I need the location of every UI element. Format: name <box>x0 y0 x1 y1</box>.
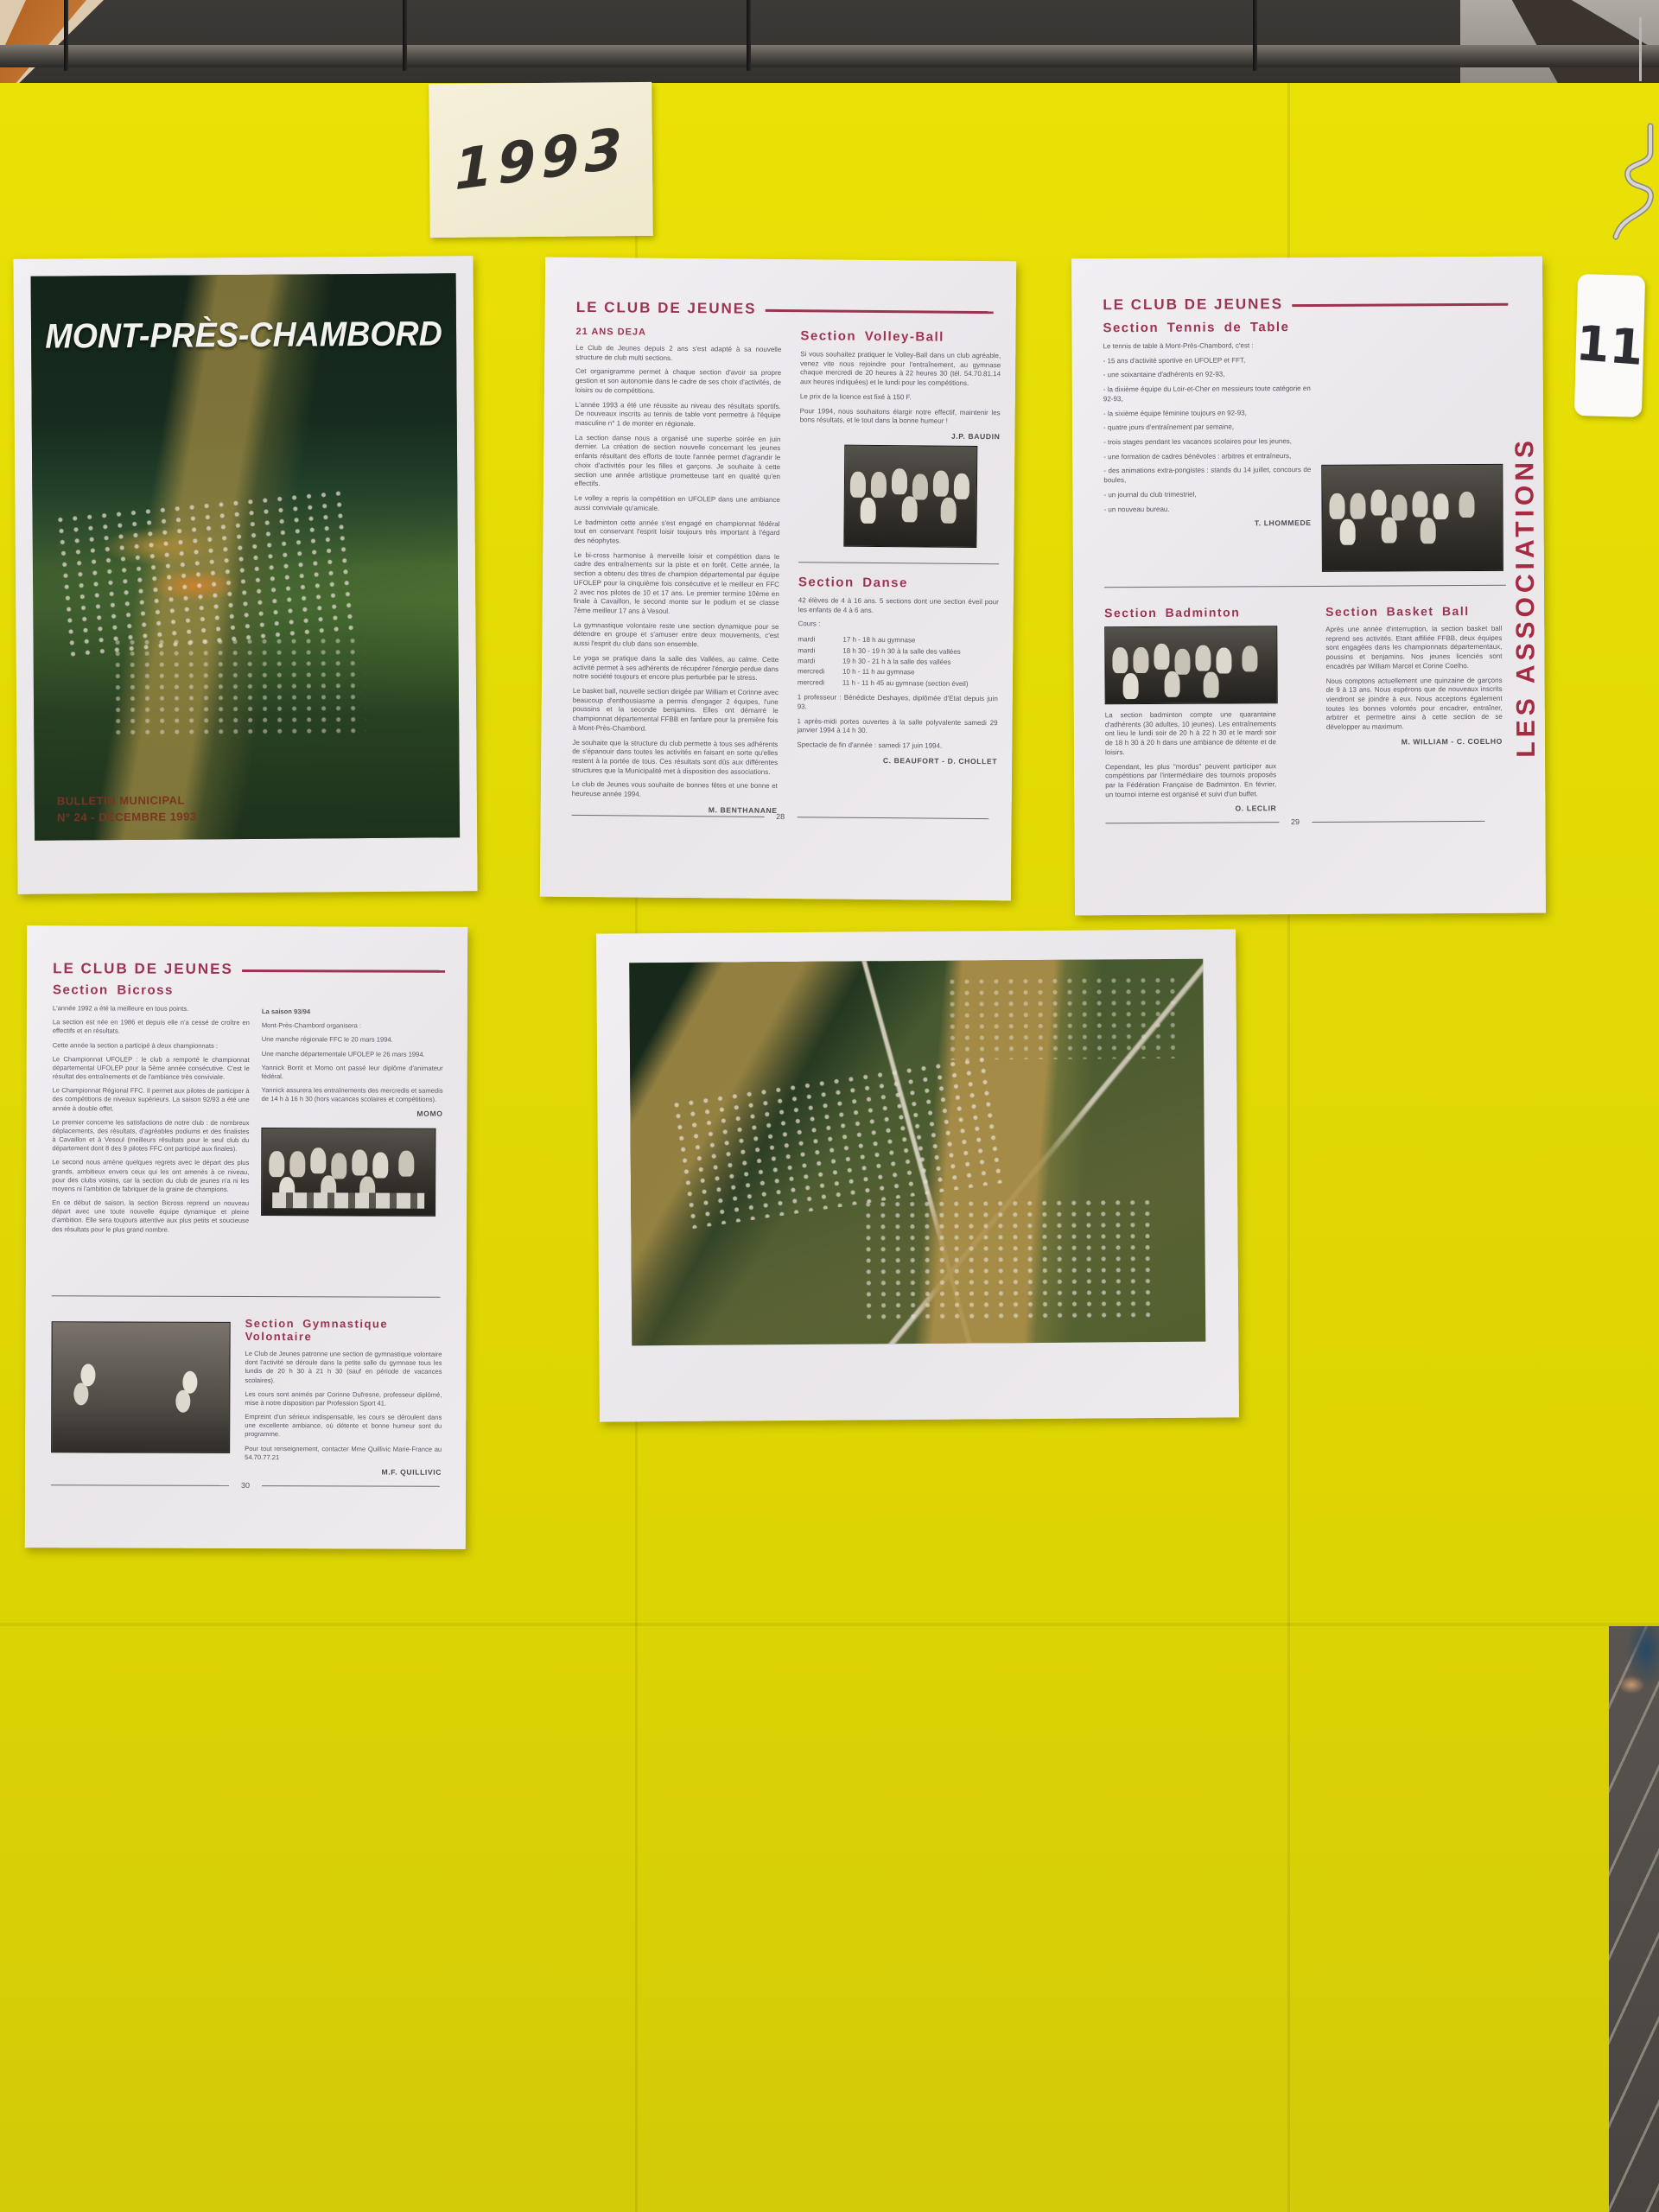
page-28-club-de-jeunes: LE CLUB DE JEUNES 21 ANS DEJA Le Club de… <box>540 257 1016 901</box>
paragraph: L'année 1992 a été la meilleure en tous … <box>53 1004 250 1014</box>
year-sticky-note: 1993 <box>429 82 653 238</box>
page-29-club-de-jeunes: LE CLUB DE JEUNES Section Tennis de Tabl… <box>1071 257 1546 916</box>
page-header-title: LE CLUB DE JEUNES <box>53 960 233 978</box>
volley-danse-column: Section Volley-Ball Si vous souhaitez pr… <box>797 328 1001 771</box>
schedule-time: 10 h - 11 h au gymnase <box>842 667 915 678</box>
page-number: 29 <box>1291 817 1300 826</box>
paragraph: La section danse nous a organisé une sup… <box>575 434 781 491</box>
paragraph: Pour tout renseignement, contacter Mme Q… <box>245 1445 442 1463</box>
cover-caption-line1: BULLETIN MUNICIPAL <box>57 793 197 810</box>
aerial-houses-texture <box>861 1197 1160 1321</box>
shelf-gap-right <box>1609 1626 1659 2212</box>
badminton-group-photo <box>1104 626 1277 704</box>
schedule-day: mardi <box>798 645 842 657</box>
page-header: LE CLUB DE JEUNES <box>1103 295 1508 314</box>
cover-title: MONT-PRÈS-CHAMBORD <box>44 315 444 356</box>
basket-column: Section Basket Ball Après une année d'in… <box>1325 604 1503 752</box>
schedule-day: mercredi <box>798 667 842 678</box>
board-crease <box>0 1623 1659 1626</box>
paragraph: Je souhaite que la structure du club per… <box>572 739 778 778</box>
village-aerial-photo <box>629 959 1205 1346</box>
tennis-signature: T. LHOMMEDE <box>1104 518 1312 528</box>
basket-heading: Section Basket Ball <box>1325 604 1502 619</box>
header-rule <box>765 308 993 313</box>
board-number: 11 <box>1574 315 1646 377</box>
volley-signature: J.P. BAUDIN <box>799 430 1000 441</box>
danse-signature: C. BEAUFORT - D. CHOLLET <box>797 755 997 766</box>
danse-schedule: mardi17 h - 18 h au gymnasemardi18 h 30 … <box>798 634 999 690</box>
aerial-houses-texture <box>945 975 1175 1060</box>
schedule-day: mardi <box>798 634 842 645</box>
paragraph: - une soixantaine d'adhérents en 92-93, <box>1103 370 1311 380</box>
paragraph: - 15 ans d'activité sportive en UFOLEP e… <box>1103 356 1311 366</box>
footer-rule-right <box>797 817 989 819</box>
schedule-time: 18 h 30 - 19 h 30 à la salle des vallées <box>842 645 961 658</box>
paragraph: Pour 1994, nous souhaitons élargir notre… <box>800 407 1001 427</box>
metal-rail <box>0 45 1659 67</box>
volley-paragraphs: Si vous souhaitez pratiquer le Volley-Ba… <box>800 350 1001 427</box>
season-heading: La saison 93/94 <box>262 1007 443 1017</box>
paragraph: La gymnastique volontaire reste une sect… <box>573 621 779 651</box>
page-footer: 28 <box>572 810 989 823</box>
paragraph: - une formation de cadres bénévoles : ar… <box>1103 452 1311 462</box>
paragraph: Nous comptons actuellement une quinzaine… <box>1326 676 1503 732</box>
paragraph: Le Championnat UFOLEP : le club a rempor… <box>53 1055 250 1082</box>
board-number-label: 11 <box>1574 274 1645 417</box>
cover-houses-texture <box>110 635 365 739</box>
gym-signature: M.F. QUILLIVIC <box>245 1467 442 1477</box>
paragraph: Le volley a repris la compétition en UFO… <box>575 494 780 515</box>
shelf-top-strip <box>0 0 1659 86</box>
paragraph: Après une année d'interruption, la secti… <box>1325 625 1502 672</box>
paragraph: Si vous souhaitez pratiquer le Volley-Ba… <box>800 350 1001 389</box>
footer-rule-left <box>572 814 765 817</box>
badminton-heading: Section Badminton <box>1104 605 1275 620</box>
cover-aerial-photo: MONT-PRÈS-CHAMBORD BULLETIN MUNICIPAL N°… <box>31 273 461 840</box>
schedule-time: 11 h - 11 h 45 au gymnase (section éveil… <box>842 677 969 690</box>
aerial-photo-sheet <box>596 929 1239 1421</box>
schedule-row: mercredi11 h - 11 h 45 au gymnase (secti… <box>798 677 998 690</box>
header-rule <box>1292 302 1508 306</box>
grid-wire <box>64 0 68 71</box>
schedule-time: 19 h 30 - 21 h à la salle des vallées <box>842 657 951 668</box>
footer-rule-right <box>1312 820 1485 822</box>
paragraph: Empreint d'un sérieux indispensable, les… <box>245 1413 442 1440</box>
season-signature: MOMO <box>261 1109 442 1118</box>
paragraph: Le badminton cette année s'est engagé en… <box>574 518 779 547</box>
cover-caption-line2: N° 24 - DÉCEMBRE 1993 <box>57 810 197 827</box>
tennis-heading: Section Tennis de Table <box>1103 320 1310 335</box>
paragraph: Le basket ball, nouvelle section dirigée… <box>572 687 778 735</box>
danse-notes: 1 professeur : Bénédicte Deshayes, diplô… <box>797 693 998 752</box>
paragraph: Cet organigramme permet à chaque section… <box>575 367 781 397</box>
year-handwritten: 1993 <box>454 117 628 204</box>
grid-wire <box>747 0 751 71</box>
danse-intro: 42 élèves de 4 à 16 ans. 5 sections dont… <box>798 596 999 616</box>
footer-rule-right <box>262 1485 440 1487</box>
page-header: LE CLUB DE JEUNES <box>576 299 994 320</box>
page-number: 30 <box>241 1481 250 1490</box>
grid-wire <box>1253 0 1257 71</box>
tennis-column: Section Tennis de Table Le tennis de tab… <box>1103 320 1311 534</box>
volley-team-photo <box>843 445 977 548</box>
header-rule <box>242 969 445 972</box>
basket-signature: M. WILLIAM - C. COELHO <box>1326 737 1503 747</box>
page-header-title: LE CLUB DE JEUNES <box>1103 296 1283 314</box>
danse-cours-label: Cours : <box>798 620 998 632</box>
paragraph: Les cours sont animés par Corinne Dufres… <box>245 1390 442 1408</box>
gym-column: Section Gymnastique Volontaire Le Club d… <box>245 1317 442 1482</box>
badminton-signature: O. LECLIR <box>1105 804 1276 814</box>
section-divider <box>1104 585 1506 588</box>
paragraph: Le Club de Jeunes depuis 2 ans s'est ada… <box>575 344 781 365</box>
paragraph: Cependant, les plus "mordus" peuvent par… <box>1105 762 1276 800</box>
volley-heading: Section Volley-Ball <box>800 328 1001 345</box>
tennis-intro: Le tennis de table à Mont-Près-Chambord,… <box>1103 341 1311 352</box>
schedule-day: mardi <box>798 656 842 667</box>
intro-paragraphs: Le Club de Jeunes depuis 2 ans s'est ada… <box>572 344 782 801</box>
footer-rule-left <box>51 1484 229 1486</box>
paragraph: 1 professeur : Bénédicte Deshayes, diplô… <box>798 693 998 713</box>
bicross-left-column: Section Bicross L'année 1992 a été la me… <box>52 982 250 1240</box>
tennis-team-photo <box>1321 464 1503 572</box>
paragraph: En ce début de saison, la section Bicros… <box>52 1198 249 1234</box>
badminton-paragraphs: La section badminton compte une quaranta… <box>1105 710 1277 800</box>
paragraph: Le yoga se pratique dans la salle des Va… <box>573 654 779 683</box>
cover-caption: BULLETIN MUNICIPAL N° 24 - DÉCEMBRE 1993 <box>57 793 197 827</box>
intro-heading: 21 ANS DEJA <box>575 327 781 339</box>
paragraph: Le second nous amène quelques regrets av… <box>52 1159 249 1194</box>
display-board-photo: 1993 11 MONT-PRÈS-CHAMBORD BULLETIN MUNI… <box>0 0 1659 2212</box>
gym-heading: Section Gymnastique Volontaire <box>245 1317 442 1344</box>
wire-hook-icon <box>1605 123 1659 252</box>
paragraph: Le premier concerne les satisfactions de… <box>52 1118 249 1154</box>
paragraph: - des animations extra-pongistes : stand… <box>1103 466 1311 486</box>
paragraph: Le club de Jeunes vous souhaite de bonne… <box>572 780 778 801</box>
page-header-title: LE CLUB DE JEUNES <box>576 299 757 318</box>
paragraph: La section est née en 1986 et depuis ell… <box>53 1018 250 1036</box>
hook-wire-top <box>1639 17 1642 81</box>
badminton-column: Section Badminton La section badminton c… <box>1104 605 1276 819</box>
paragraph: Cette année la section a participé à deu… <box>53 1041 250 1051</box>
danse-heading: Section Danse <box>798 575 999 591</box>
paragraph: Yannick assurera les entraînements des m… <box>262 1086 443 1104</box>
paragraph: Le Club de Jeunes patronne une section d… <box>245 1350 442 1385</box>
section-divider <box>52 1295 441 1298</box>
page-footer: 30 <box>51 1480 440 1491</box>
bicross-right-column: La saison 93/94 Mont-Près-Chambord organ… <box>261 1007 443 1217</box>
page-header: LE CLUB DE JEUNES <box>53 960 445 979</box>
gym-paragraphs: Le Club de Jeunes patronne une section d… <box>245 1350 442 1463</box>
paragraph: Mont-Près-Chambord organisera : <box>262 1021 443 1031</box>
paragraph: La section badminton compte une quaranta… <box>1105 710 1276 758</box>
paragraph: Yannick Borrit et Momo ont passé leur di… <box>262 1064 443 1082</box>
paragraph: - quatre jours d'entraînement par semain… <box>1103 423 1311 433</box>
paragraph: L'année 1993 a été une réussite au nivea… <box>575 401 781 430</box>
paragraph: - un nouveau bureau. <box>1104 505 1312 515</box>
paragraph: Une manche régionale FFC le 20 mars 1994… <box>262 1035 443 1045</box>
tennis-bullets: - 15 ans d'activité sportive en UFOLEP e… <box>1103 356 1312 515</box>
gym-exercise-photo <box>51 1321 231 1453</box>
paragraph: - un journal du club trimestriel, <box>1103 490 1311 500</box>
footer-rule-left <box>1105 822 1279 823</box>
paragraph: Une manche départementale UFOLEP le 26 m… <box>262 1050 443 1059</box>
section-divider <box>798 562 999 564</box>
basket-paragraphs: Après une année d'interruption, la secti… <box>1325 625 1503 733</box>
paragraph: 1 après-midi portes ouvertes à la salle … <box>797 717 997 737</box>
bicross-heading: Section Bicross <box>53 982 250 998</box>
paragraph: Le Championnat Régional FFC. Il permet a… <box>53 1086 250 1113</box>
schedule-time: 17 h - 18 h au gymnase <box>842 635 915 646</box>
paragraph: Spectacle de fin d'année : samedi 17 jui… <box>797 741 997 752</box>
paragraph: Le bi-cross harmonise à merveille loisir… <box>574 551 780 618</box>
intro-column: 21 ANS DEJA Le Club de Jeunes depuis 2 a… <box>572 327 782 820</box>
page-footer: 29 <box>1105 817 1484 827</box>
season-paragraphs: Mont-Près-Chambord organisera :Une manch… <box>262 1021 443 1104</box>
page-number: 28 <box>776 812 785 821</box>
paragraph: - la dixième équipe du Loir-et-Cher en m… <box>1103 385 1311 404</box>
schedule-day: mercredi <box>798 677 842 689</box>
paragraph: - la sixième équipe féminine toujours en… <box>1103 409 1311 419</box>
sidebar-les-associations: LES ASSOCIATIONS <box>1510 386 1541 758</box>
bulletin-cover: MONT-PRÈS-CHAMBORD BULLETIN MUNICIPAL N°… <box>13 256 477 894</box>
bicross-paragraphs: L'année 1992 a été la meilleure en tous … <box>52 1004 250 1235</box>
paragraph: Le prix de la licence est fixé à 150 F. <box>800 392 1001 404</box>
bicross-podium-photo <box>261 1128 435 1217</box>
paragraph: - trois stages pendant les vacances scol… <box>1103 437 1311 448</box>
grid-wire <box>403 0 407 71</box>
page-30-club-de-jeunes: LE CLUB DE JEUNES Section Bicross L'anné… <box>25 925 468 1549</box>
